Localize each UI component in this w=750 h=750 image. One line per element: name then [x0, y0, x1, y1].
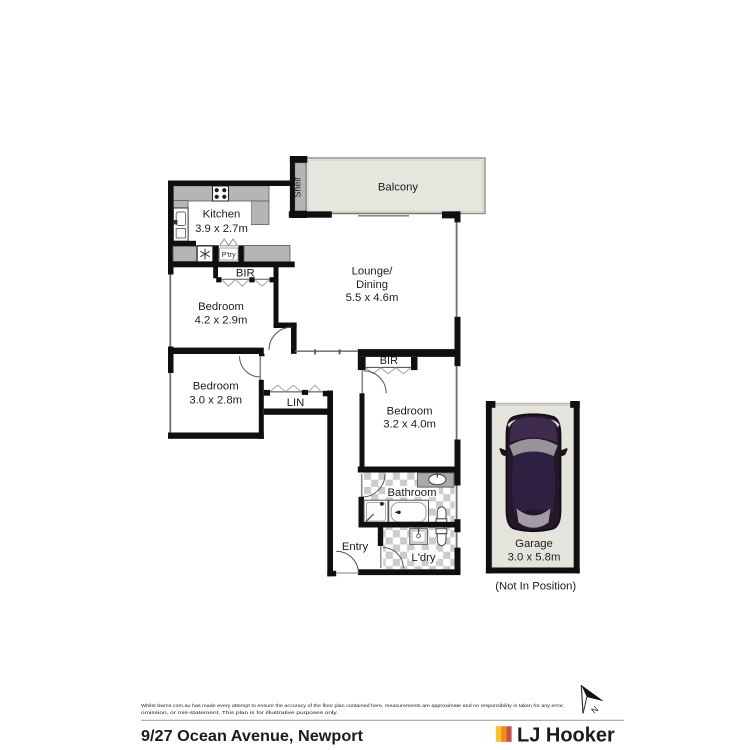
svg-text:4.2 x 2.9m: 4.2 x 2.9m [195, 314, 248, 326]
svg-text:3.0 x 2.8m: 3.0 x 2.8m [189, 395, 242, 407]
svg-text:Whilst bwms.com.au has made ev: Whilst bwms.com.au has made every attemp… [141, 703, 564, 708]
svg-text:3.2 x 4.0m: 3.2 x 4.0m [383, 418, 436, 430]
svg-text:Balcony: Balcony [378, 182, 419, 194]
svg-text:9/27 Ocean Avenue, Newport: 9/27 Ocean Avenue, Newport [141, 728, 363, 745]
svg-text:Entry: Entry [342, 541, 369, 553]
svg-text:L'dry: L'dry [411, 552, 435, 564]
svg-text:5.5 x 4.6m: 5.5 x 4.6m [346, 292, 399, 304]
svg-text:Bedroom: Bedroom [198, 301, 244, 313]
svg-text:Kitchen: Kitchen [203, 209, 241, 221]
svg-text:P'try: P'try [222, 252, 236, 259]
svg-text:Bathroom: Bathroom [388, 487, 437, 499]
svg-text:(Not In Position): (Not In Position) [495, 580, 576, 592]
svg-text:LJ Hooker: LJ Hooker [517, 725, 615, 747]
svg-text:Lounge/: Lounge/ [352, 266, 394, 278]
svg-text:Bedroom: Bedroom [387, 405, 433, 417]
svg-text:3.9 x 2.7m: 3.9 x 2.7m [195, 223, 248, 235]
svg-text:BIR: BIR [380, 355, 398, 367]
svg-text:omission, or mis-statement. Th: omission, or mis-statement. This plan is… [141, 710, 338, 715]
svg-text:LIN: LIN [287, 397, 305, 409]
svg-text:Bedroom: Bedroom [193, 381, 239, 393]
svg-text:3.0 x 5.8m: 3.0 x 5.8m [508, 551, 561, 563]
svg-text:Garage: Garage [515, 538, 553, 550]
svg-text:Dining: Dining [356, 279, 388, 291]
